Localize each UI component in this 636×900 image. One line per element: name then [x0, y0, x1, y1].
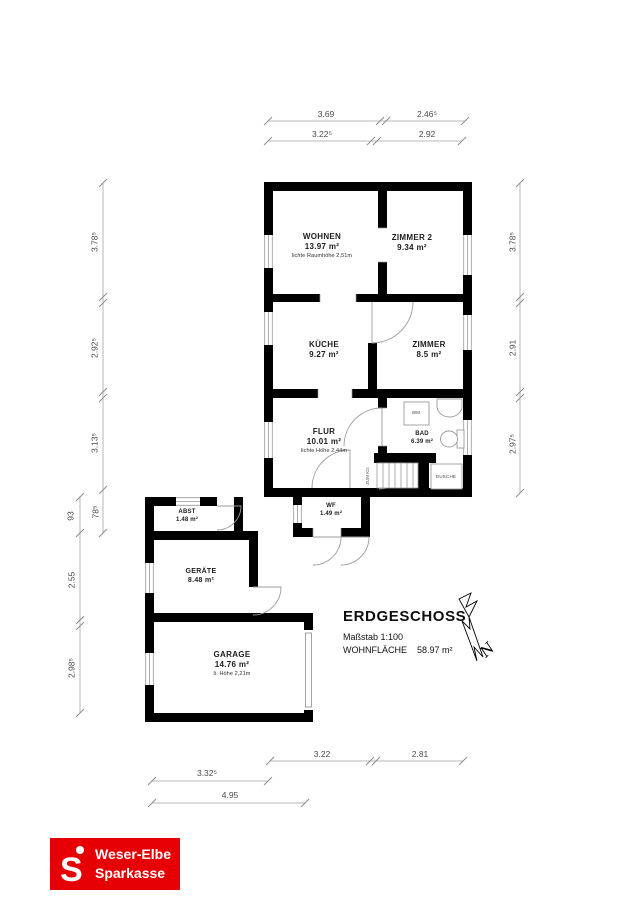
walls-garage-annex [145, 497, 313, 722]
room-area: 6.39 m² [411, 439, 433, 447]
room-area: 13.97 m² [292, 242, 352, 252]
dim-top-2: 2.46⁵ [417, 109, 437, 120]
dim-left-6: 2.55 [66, 572, 77, 589]
room-label-flur: FLUR 10.01 m² lichte Höhe 2,44m [301, 427, 347, 455]
dim-top-4: 2.92 [419, 129, 436, 140]
room-label-wohnen: WOHNEN 13.97 m² lichte Raumhöhe 2,51m [292, 232, 352, 260]
room-name: FLUR [301, 427, 347, 437]
room-label-wf: WF 1.49 m² [320, 503, 342, 519]
room-note: li. Höhe 2,21m [214, 671, 251, 678]
room-label-geraete: GERÄTE 8.48 m² [186, 567, 217, 585]
dim-right-2: 2.91 [507, 340, 518, 357]
room-area: 1.49 m² [320, 511, 342, 519]
north-letter: N [475, 638, 498, 661]
room-area: 9.27 m² [309, 350, 339, 360]
room-name: GARAGE [214, 650, 251, 660]
room-area: 1.48 m² [176, 517, 198, 525]
room-area: 14.76 m² [214, 660, 251, 670]
logo-line2: Sparkasse [95, 864, 171, 883]
toilet-icon [441, 430, 465, 448]
room-label-zimmer: ZIMMER 8.5 m² [412, 340, 445, 361]
dim-left-5: 93 [65, 511, 76, 520]
scale-label: Maßstab 1:100 [343, 632, 403, 642]
room-area: 9.34 m² [392, 243, 433, 253]
room-label-bad: BAD 6.39 m² [411, 431, 433, 447]
sink-icon [437, 399, 462, 417]
room-note: lichte Raumhöhe 2,51m [292, 253, 352, 260]
sparkasse-logo: S Weser-Elbe Sparkasse [50, 838, 180, 890]
room-name: ZIMMER [412, 340, 445, 350]
dim-top-1: 3.69 [318, 109, 335, 120]
room-name: WF [320, 503, 342, 511]
living-area-line: WOHNFLÄCHE58.97 m² [343, 645, 453, 655]
dim-bottom-3: 3.32⁵ [197, 768, 217, 779]
room-name: BAD [411, 431, 433, 439]
room-area: 8.5 m² [412, 350, 445, 360]
garage-door-leaf [306, 633, 312, 707]
dim-left-4: 78⁵ [90, 506, 101, 519]
room-label-garage: GARAGE 14.76 m² li. Höhe 2,21m [214, 650, 251, 678]
room-label-kueche: KÜCHE 9.27 m² [309, 340, 339, 361]
north-arrow-icon: N [459, 593, 499, 662]
room-name: ABST [176, 509, 198, 517]
dim-left-1: 3.78⁵ [89, 232, 100, 252]
room-note: lichte Höhe 2,44m [301, 448, 347, 455]
dim-left-3: 3.13⁵ [89, 433, 100, 453]
dim-right-3: 2.97⁵ [507, 434, 518, 454]
logo-symbol: S [60, 851, 83, 885]
logo-line1: Weser-Elbe [95, 845, 171, 864]
room-name: GERÄTE [186, 567, 217, 576]
room-label-abst: ABST 1.48 m² [176, 509, 198, 525]
sparkasse-s-icon: S [58, 843, 88, 885]
dim-left-7: 2.98⁵ [66, 658, 77, 678]
dim-right-1: 3.78⁵ [507, 232, 518, 252]
dim-bottom-1: 3.22 [314, 749, 331, 760]
shower-label: DUSCHE [436, 474, 456, 480]
dim-top-3: 3.22⁵ [312, 129, 332, 140]
living-area-value: 58.97 m² [417, 645, 453, 655]
logo-text: Weser-Elbe Sparkasse [95, 845, 171, 883]
room-name: WOHNEN [292, 232, 352, 242]
dimension-ticks [76, 117, 524, 807]
dim-bottom-2: 2.81 [412, 749, 429, 760]
room-name: ZIMMER 2 [392, 233, 433, 243]
room-name: KÜCHE [309, 340, 339, 350]
washing-machine-label: WM [412, 410, 420, 416]
stairs-icon [377, 463, 418, 488]
floorplan-page: N 3.69 2.46⁵ 3.22⁵ 2.92 3.78⁵ 2.92⁵ 3.13… [0, 0, 636, 900]
room-area: 10.01 m² [301, 437, 347, 447]
living-area-label: WOHNFLÄCHE [343, 645, 407, 655]
stairs-label: ZUM KG [365, 467, 371, 485]
dim-bottom-4: 4.95 [222, 790, 239, 801]
page-title: ERDGESCHOSS [343, 608, 466, 625]
room-label-zimmer2: ZIMMER 2 9.34 m² [392, 233, 433, 254]
room-area: 8.48 m² [186, 576, 217, 585]
dim-left-2: 2.92⁵ [89, 338, 100, 358]
